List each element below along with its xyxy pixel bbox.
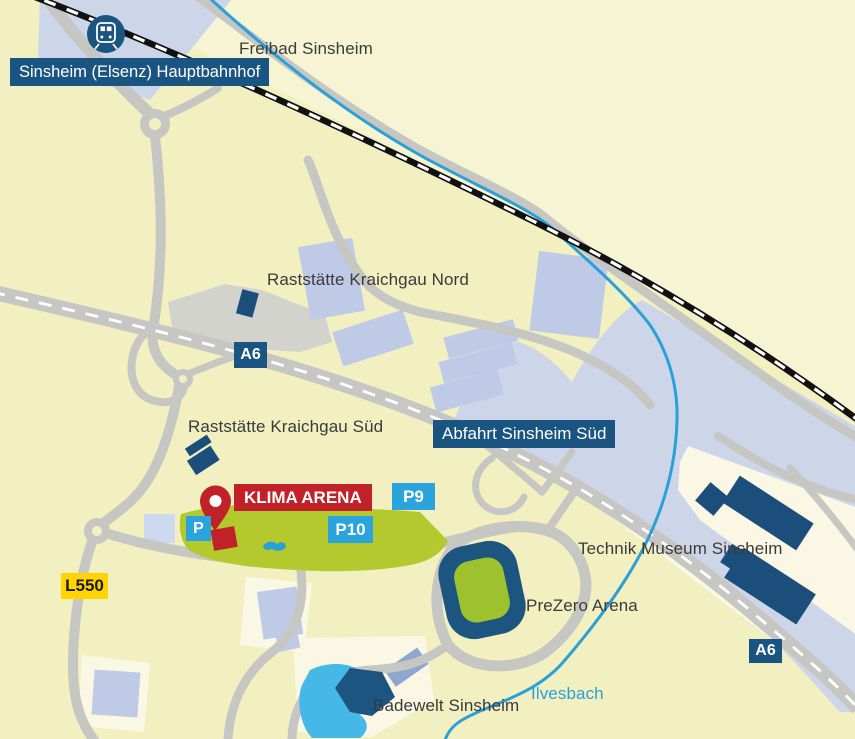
train-station-icon	[87, 15, 125, 53]
building-near-arena	[144, 514, 175, 543]
train-window-left	[101, 27, 106, 32]
badge-a6-top: A6	[234, 342, 267, 368]
label-technik-museum: Technik Museum Sinsheim	[578, 539, 783, 559]
label-raststaette-sued: Raststätte Kraichgau Süd	[188, 417, 383, 437]
train-icon-circle	[87, 15, 125, 53]
badge-abfahrt-sinsheim-sued: Abfahrt Sinsheim Süd	[433, 420, 615, 448]
label-prezero-arena: PreZero Arena	[526, 596, 638, 616]
arena-pond	[263, 542, 286, 551]
label-ilvesbach: Ilvesbach	[531, 684, 604, 704]
badge-hauptbahnhof: Sinsheim (Elsenz) Hauptbahnhof	[10, 58, 269, 86]
building-square-large	[529, 251, 608, 339]
badge-p10: P10	[328, 516, 373, 543]
train-light-left	[100, 36, 103, 39]
roundabout-mid-island	[179, 375, 187, 383]
badge-l550: L550	[61, 573, 108, 599]
map-canvas	[0, 0, 855, 739]
roundabout-south-island	[92, 526, 102, 536]
train-window-right	[107, 27, 112, 32]
badge-a6-bottom: A6	[749, 639, 782, 663]
sinsheim-area-map: Freibad Sinsheim Raststätte Kraichgau No…	[0, 0, 855, 739]
badge-p9: P9	[392, 483, 435, 510]
label-raststaette-nord: Raststätte Kraichgau Nord	[267, 270, 469, 290]
label-freibad: Freibad Sinsheim	[239, 39, 373, 59]
roundabout-north-island	[149, 118, 161, 130]
badge-parking: P	[186, 516, 211, 541]
building-southwest-1	[91, 669, 140, 717]
pin-hole	[210, 495, 222, 507]
label-badewelt: Badewelt Sinsheim	[373, 696, 519, 716]
train-light-right	[109, 36, 112, 39]
badge-klima-arena: KLIMA ARENA	[234, 484, 372, 511]
